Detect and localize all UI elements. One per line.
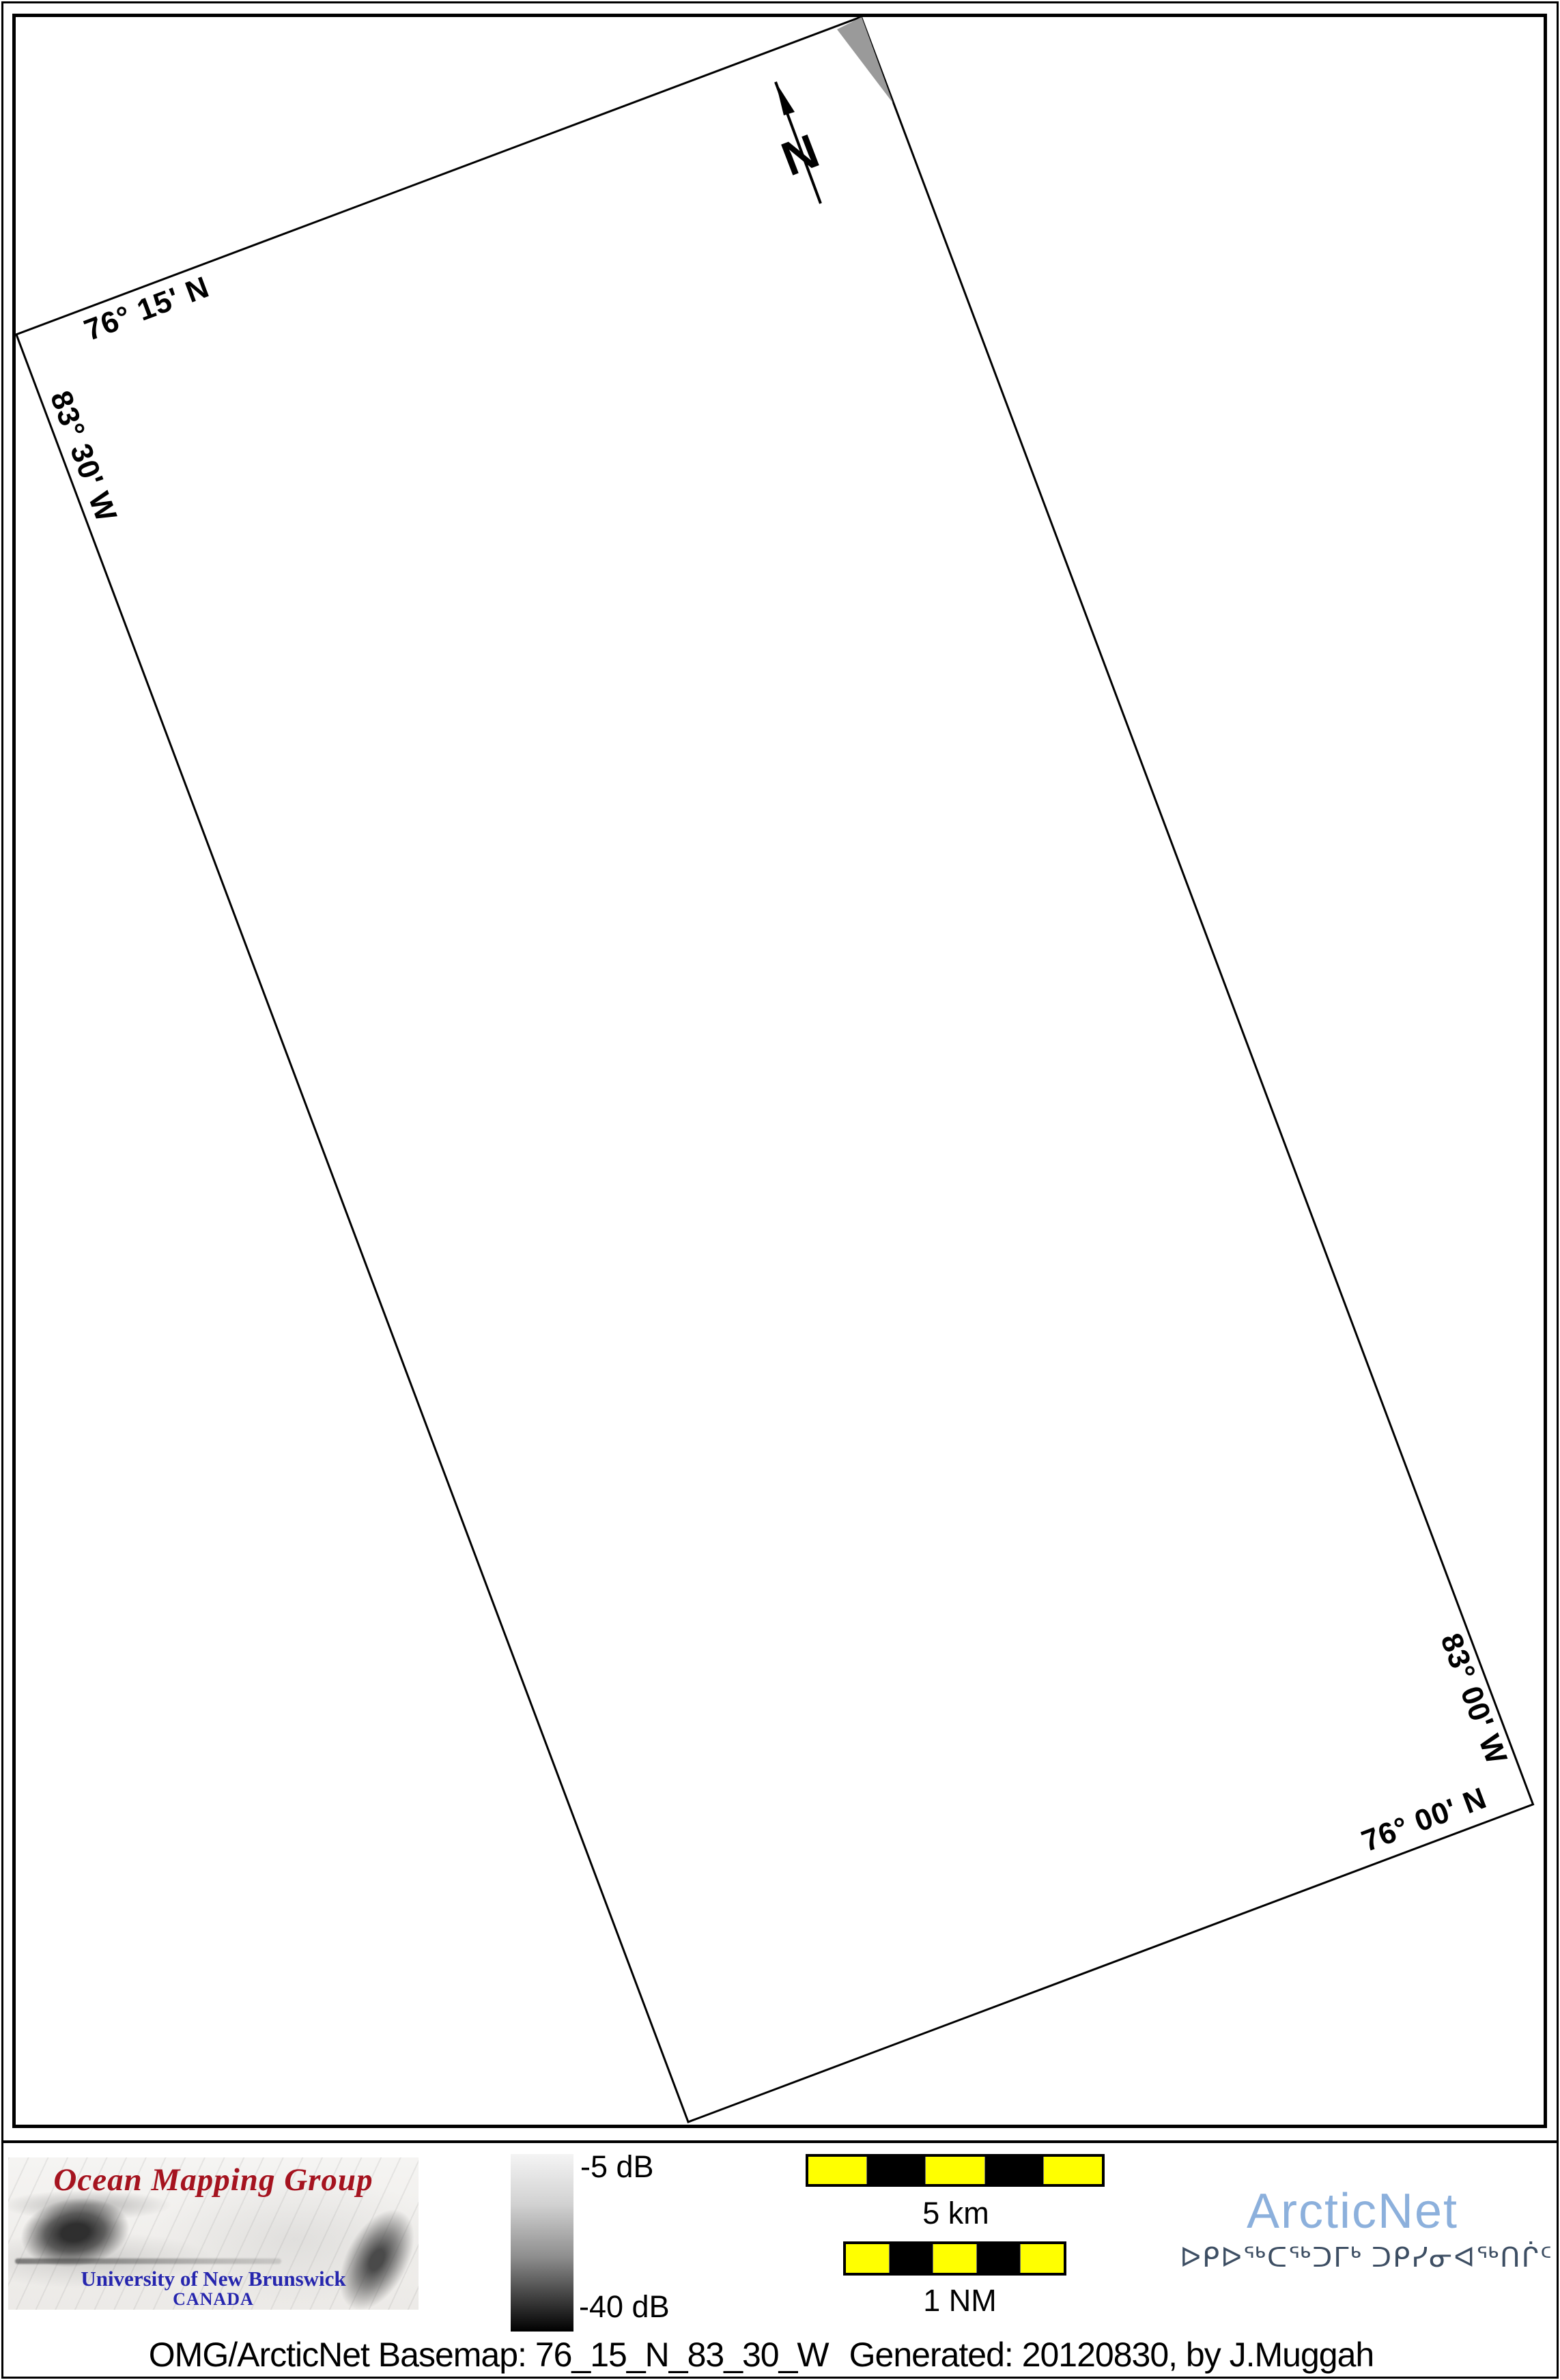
scalebar-5km: [806, 2154, 1105, 2187]
scalebar-segment: [1044, 2157, 1102, 2184]
caption-line: OMG/ArcticNet Basemap: 76_15_N_83_30_WGe…: [0, 2335, 1522, 2375]
scalebar-1nm-label: 1 NM: [923, 2283, 997, 2319]
scalebar-segment: [926, 2157, 984, 2184]
sonar-texture-streak: [15, 2258, 281, 2264]
omg-university: University of New Brunswick: [8, 2267, 419, 2291]
arcticnet-tagline-syllabics: ᐅᑭᐅᖅᑕᖅᑐᒥᒃ ᑐᑭᓯᓂᐊᖅᑎᒌᑦ: [1180, 2242, 1553, 2273]
panel-divider: [3, 2140, 1557, 2143]
omg-logo: Ocean Mapping Group University of New Br…: [8, 2157, 419, 2310]
scalebar-segment: [808, 2157, 867, 2184]
scalebar-segment: [977, 2244, 1021, 2273]
arcticnet-logo: ArcticNet: [1247, 2183, 1458, 2239]
omg-title: Ocean Mapping Group: [8, 2162, 419, 2198]
scalebar-segment: [1021, 2244, 1064, 2273]
scalebar-segment: [867, 2157, 926, 2184]
colorbar-max-label: -5 dB: [580, 2149, 654, 2185]
basemap-page: 76° 15' N 83° 30' W 83° 00' W 76° 00' N …: [0, 0, 1560, 2380]
colorbar-min-label: -40 dB: [579, 2289, 670, 2325]
omg-country: CANADA: [8, 2289, 419, 2310]
scalebar-segment: [933, 2244, 977, 2273]
scalebar-1nm: [843, 2241, 1066, 2276]
caption-basemap: OMG/ArcticNet Basemap: 76_15_N_83_30_W: [149, 2336, 829, 2374]
scalebar-5km-label: 5 km: [922, 2196, 989, 2231]
backscatter-colorbar: [511, 2154, 573, 2332]
caption-generated: Generated: 20120830, by J.Muggah: [849, 2336, 1374, 2374]
scalebar-segment: [985, 2157, 1044, 2184]
scalebar-segment: [846, 2244, 890, 2273]
scalebar-segment: [890, 2244, 933, 2273]
